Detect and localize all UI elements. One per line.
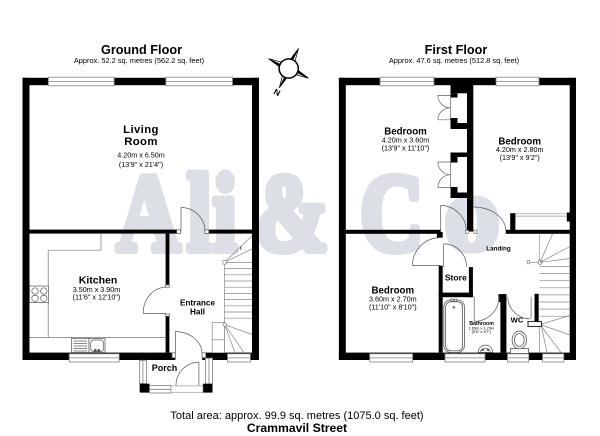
svg-text:(13'9" x 11'10"): (13'9" x 11'10") (382, 143, 430, 152)
svg-text:(11'6" x 12'10"): (11'6" x 12'10") (73, 292, 121, 301)
svg-text:Store: Store (445, 273, 467, 283)
svg-text:(13'9" x 21'4"): (13'9" x 21'4") (119, 160, 163, 169)
svg-text:Room: Room (124, 136, 158, 148)
svg-text:(5'5" x 5'7"): (5'5" x 5'7") (472, 329, 492, 334)
svg-text:Ground Floor: Ground Floor (101, 43, 182, 57)
svg-text:(11'10" x 8'10"): (11'10" x 8'10") (369, 302, 417, 311)
svg-text:First Floor: First Floor (425, 43, 488, 57)
svg-text:Entrance: Entrance (180, 299, 215, 308)
svg-text:Landing: Landing (486, 245, 511, 252)
svg-text:Crammavil Street: Crammavil Street (247, 421, 347, 435)
svg-text:Approx. 52.2 sq. metres (562.2: Approx. 52.2 sq. metres (562.2 sq. feet) (74, 56, 204, 65)
svg-text:Living: Living (123, 124, 159, 136)
svg-text:(13'9" x 9'2"): (13'9" x 9'2") (500, 153, 540, 162)
svg-text:Ali&C: Ali&C (117, 152, 424, 275)
svg-text:Hall: Hall (190, 308, 205, 317)
svg-text:4.20m x 6.50m: 4.20m x 6.50m (117, 151, 165, 160)
svg-text:Approx. 47.6 sq. metres (512.8: Approx. 47.6 sq. metres (512.8 sq. feet) (389, 56, 519, 65)
svg-text:WC: WC (511, 315, 524, 324)
svg-text:Porch: Porch (152, 363, 178, 373)
